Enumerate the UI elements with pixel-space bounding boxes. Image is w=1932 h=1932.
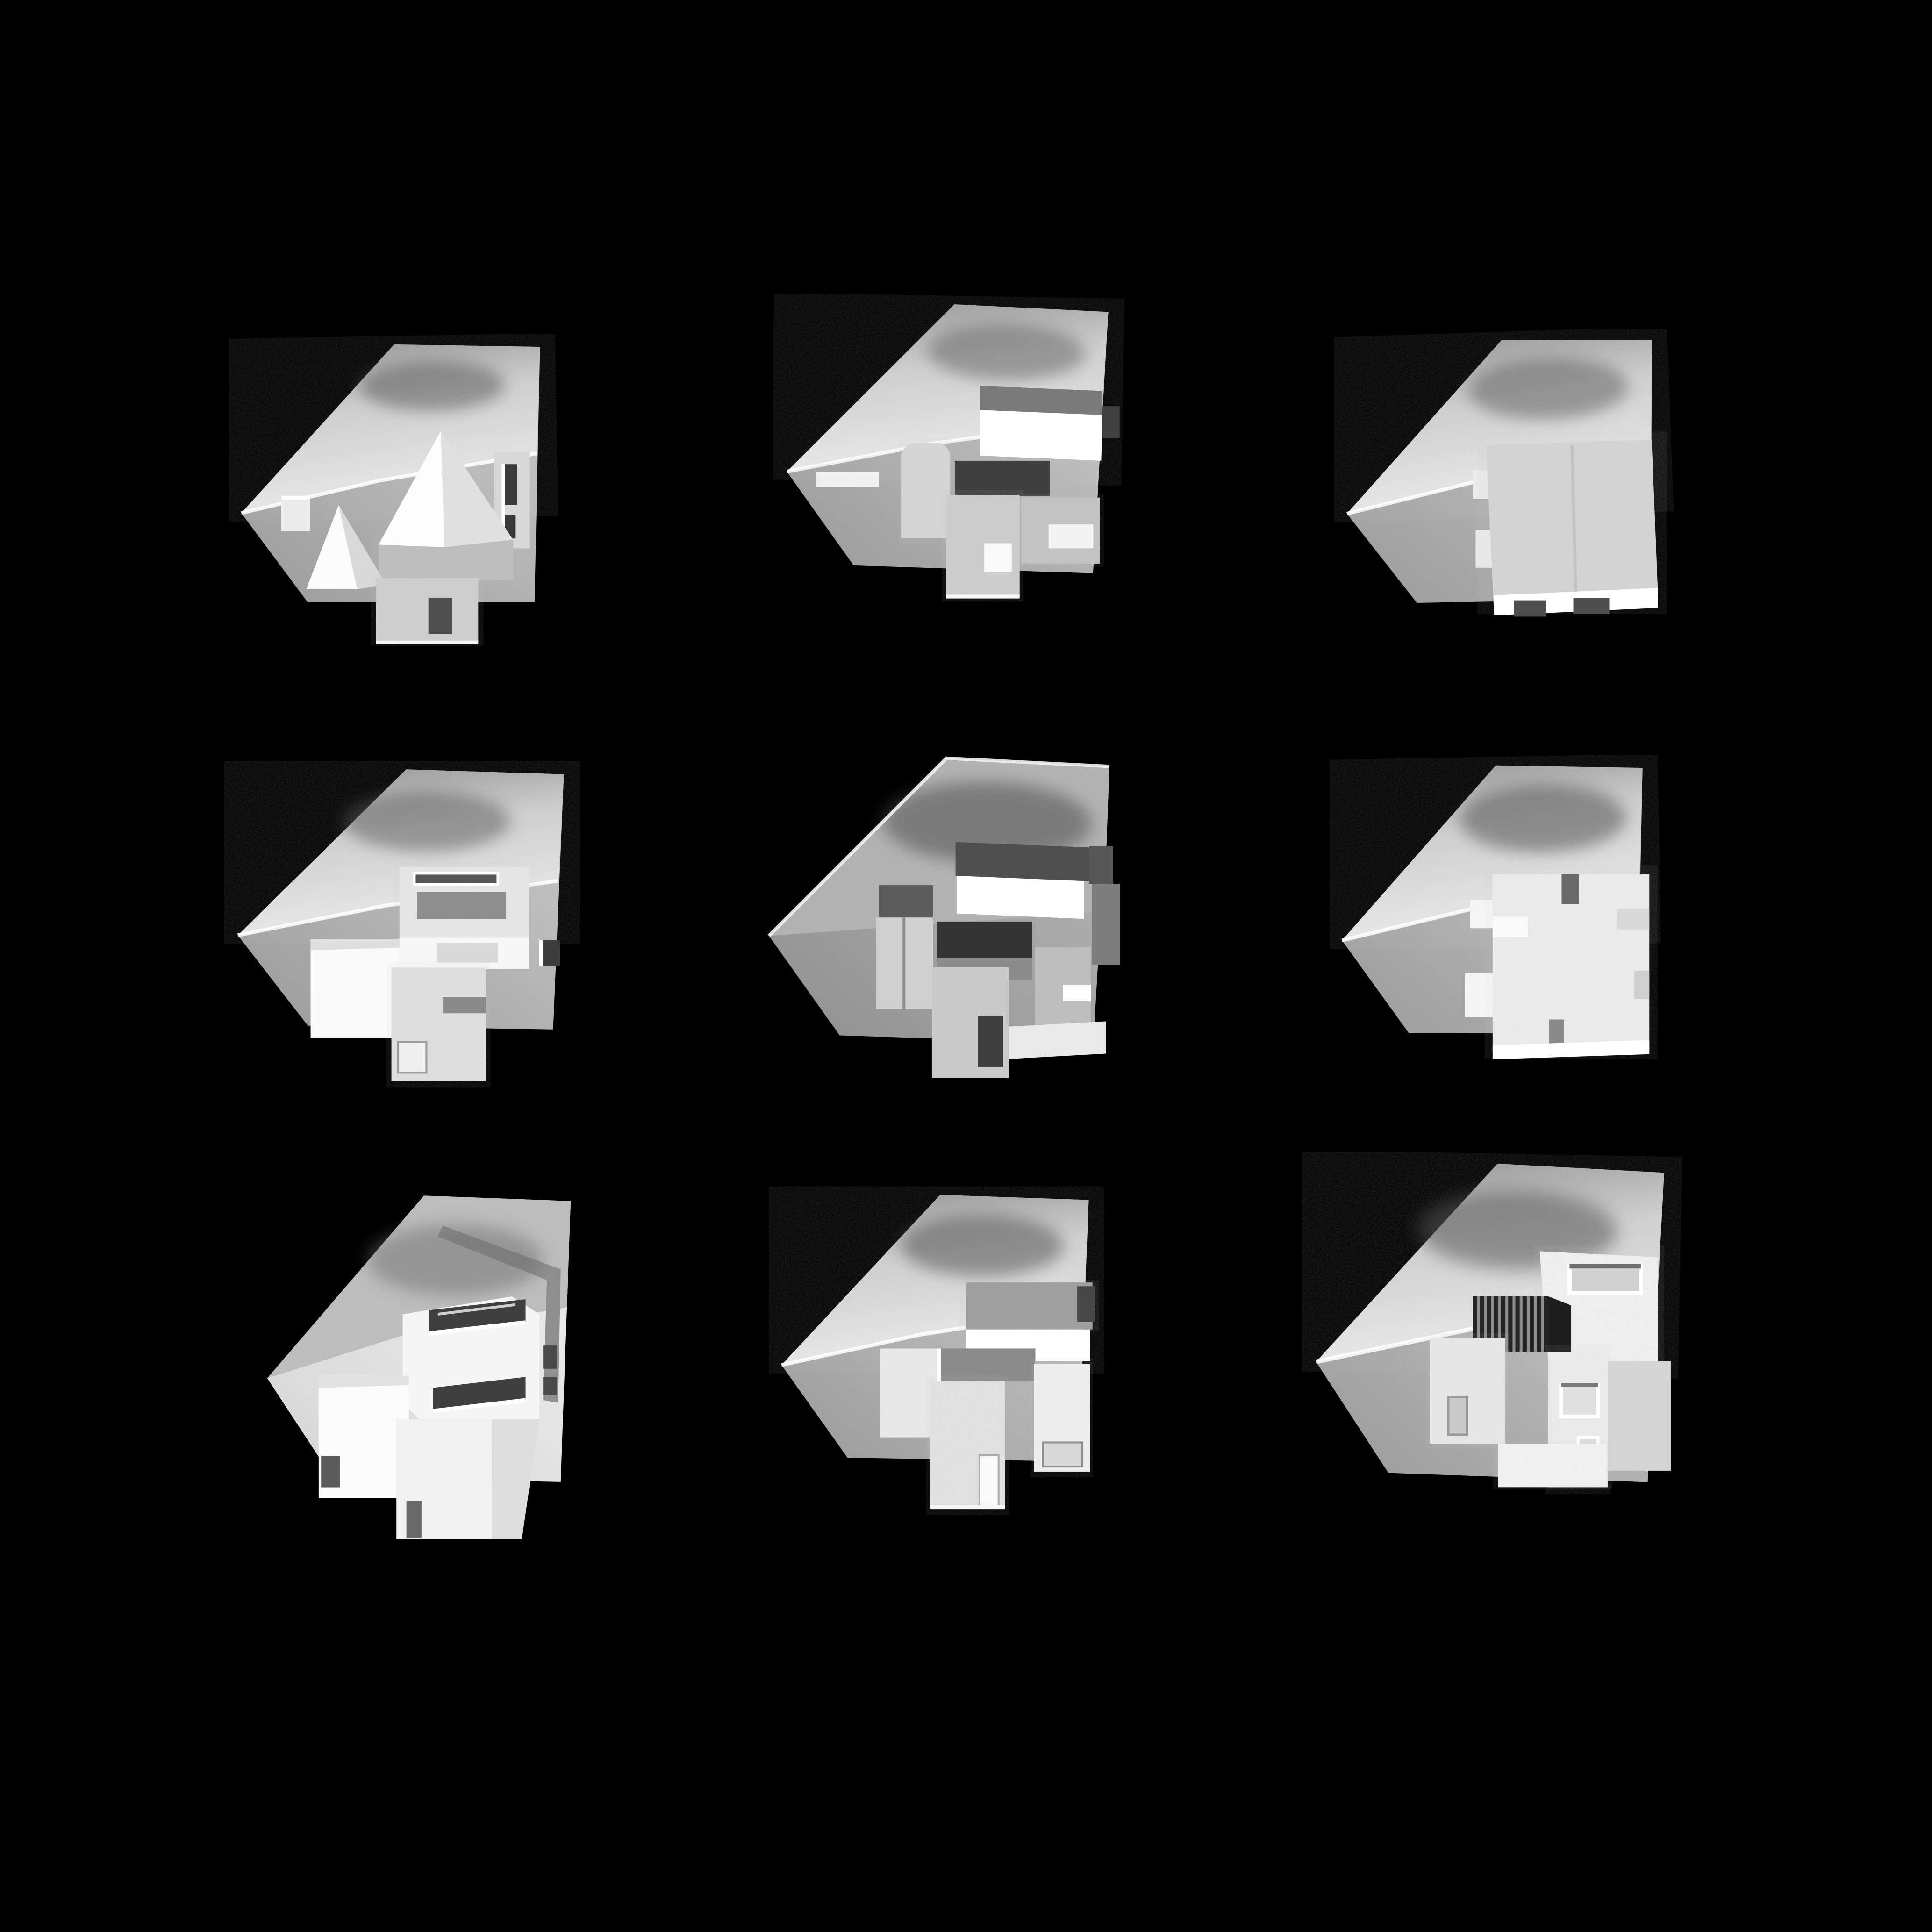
model-r2c2 xyxy=(755,748,1173,1152)
step-notch xyxy=(443,997,486,1013)
recess-shadow xyxy=(955,461,1050,496)
door-tab xyxy=(984,543,1012,572)
building-blocks xyxy=(1473,440,1658,616)
slope-shadow xyxy=(343,792,510,851)
side-ledge xyxy=(281,498,310,531)
roof-light-panel xyxy=(1049,524,1094,549)
side-slab xyxy=(1092,884,1120,965)
bar-roof-shade xyxy=(966,1282,1093,1330)
photo-canvas xyxy=(0,0,1932,1932)
recess-shadow xyxy=(939,1348,1035,1381)
east-slot xyxy=(1617,909,1649,930)
wall-shadow xyxy=(368,1224,544,1295)
narrow-slot xyxy=(407,1501,422,1538)
west-slot-lit xyxy=(1493,917,1528,937)
slope-shadow xyxy=(901,1215,1064,1276)
side-ledge xyxy=(816,472,879,487)
lit-window-panel xyxy=(1063,985,1091,1001)
east-mass xyxy=(1608,1361,1671,1471)
door-opening xyxy=(1448,1397,1467,1434)
model-r3c1 xyxy=(255,1185,631,1594)
court-shadow xyxy=(937,922,1032,958)
model-r3c2 xyxy=(769,1185,1150,1566)
building-blocks xyxy=(1465,874,1649,1059)
window-slot xyxy=(504,464,517,505)
door-opening xyxy=(429,598,452,634)
dark-recess xyxy=(879,885,933,917)
top-slot xyxy=(1561,874,1579,904)
bar-front-lit xyxy=(980,410,1102,461)
model-r1c3 xyxy=(1334,329,1720,706)
door-tab xyxy=(398,1042,427,1073)
side-slot xyxy=(543,1345,557,1369)
door-opening xyxy=(542,940,559,966)
side-slot xyxy=(543,1377,557,1395)
model-r3c3 xyxy=(1302,1152,1729,1603)
door-tab xyxy=(980,1455,999,1506)
court-floor xyxy=(437,943,498,962)
front-block xyxy=(376,578,479,643)
door-opening xyxy=(1043,1442,1082,1467)
window-opening xyxy=(1569,1266,1641,1293)
bottom-notch xyxy=(1574,598,1610,614)
model-r2c1 xyxy=(224,759,629,1131)
window-opening xyxy=(1561,1385,1598,1417)
bottom-notch xyxy=(1514,601,1546,617)
model-r1c1 xyxy=(229,334,603,706)
bar-roof-shade xyxy=(980,386,1102,415)
model-r1c2 xyxy=(773,294,1168,675)
roof-slot xyxy=(415,873,498,885)
square-window xyxy=(321,1456,340,1487)
front-terrace-block xyxy=(1498,1444,1607,1487)
east-notch xyxy=(1634,971,1649,999)
dark-notch xyxy=(1102,406,1120,438)
lit-front-band xyxy=(957,876,1084,919)
edge-tab xyxy=(1470,900,1496,929)
court-shadow xyxy=(417,892,506,919)
lit-base-strip xyxy=(1009,1021,1106,1059)
west-slab xyxy=(311,939,400,1038)
door-opening xyxy=(978,1016,1003,1067)
dark-side-slab xyxy=(1089,846,1113,884)
dark-roof-slab xyxy=(956,842,1089,881)
rounded-block xyxy=(901,443,950,538)
edge-tab xyxy=(1465,973,1495,1017)
model-r2c3 xyxy=(1330,755,1706,1140)
dark-notch xyxy=(1077,1286,1095,1322)
